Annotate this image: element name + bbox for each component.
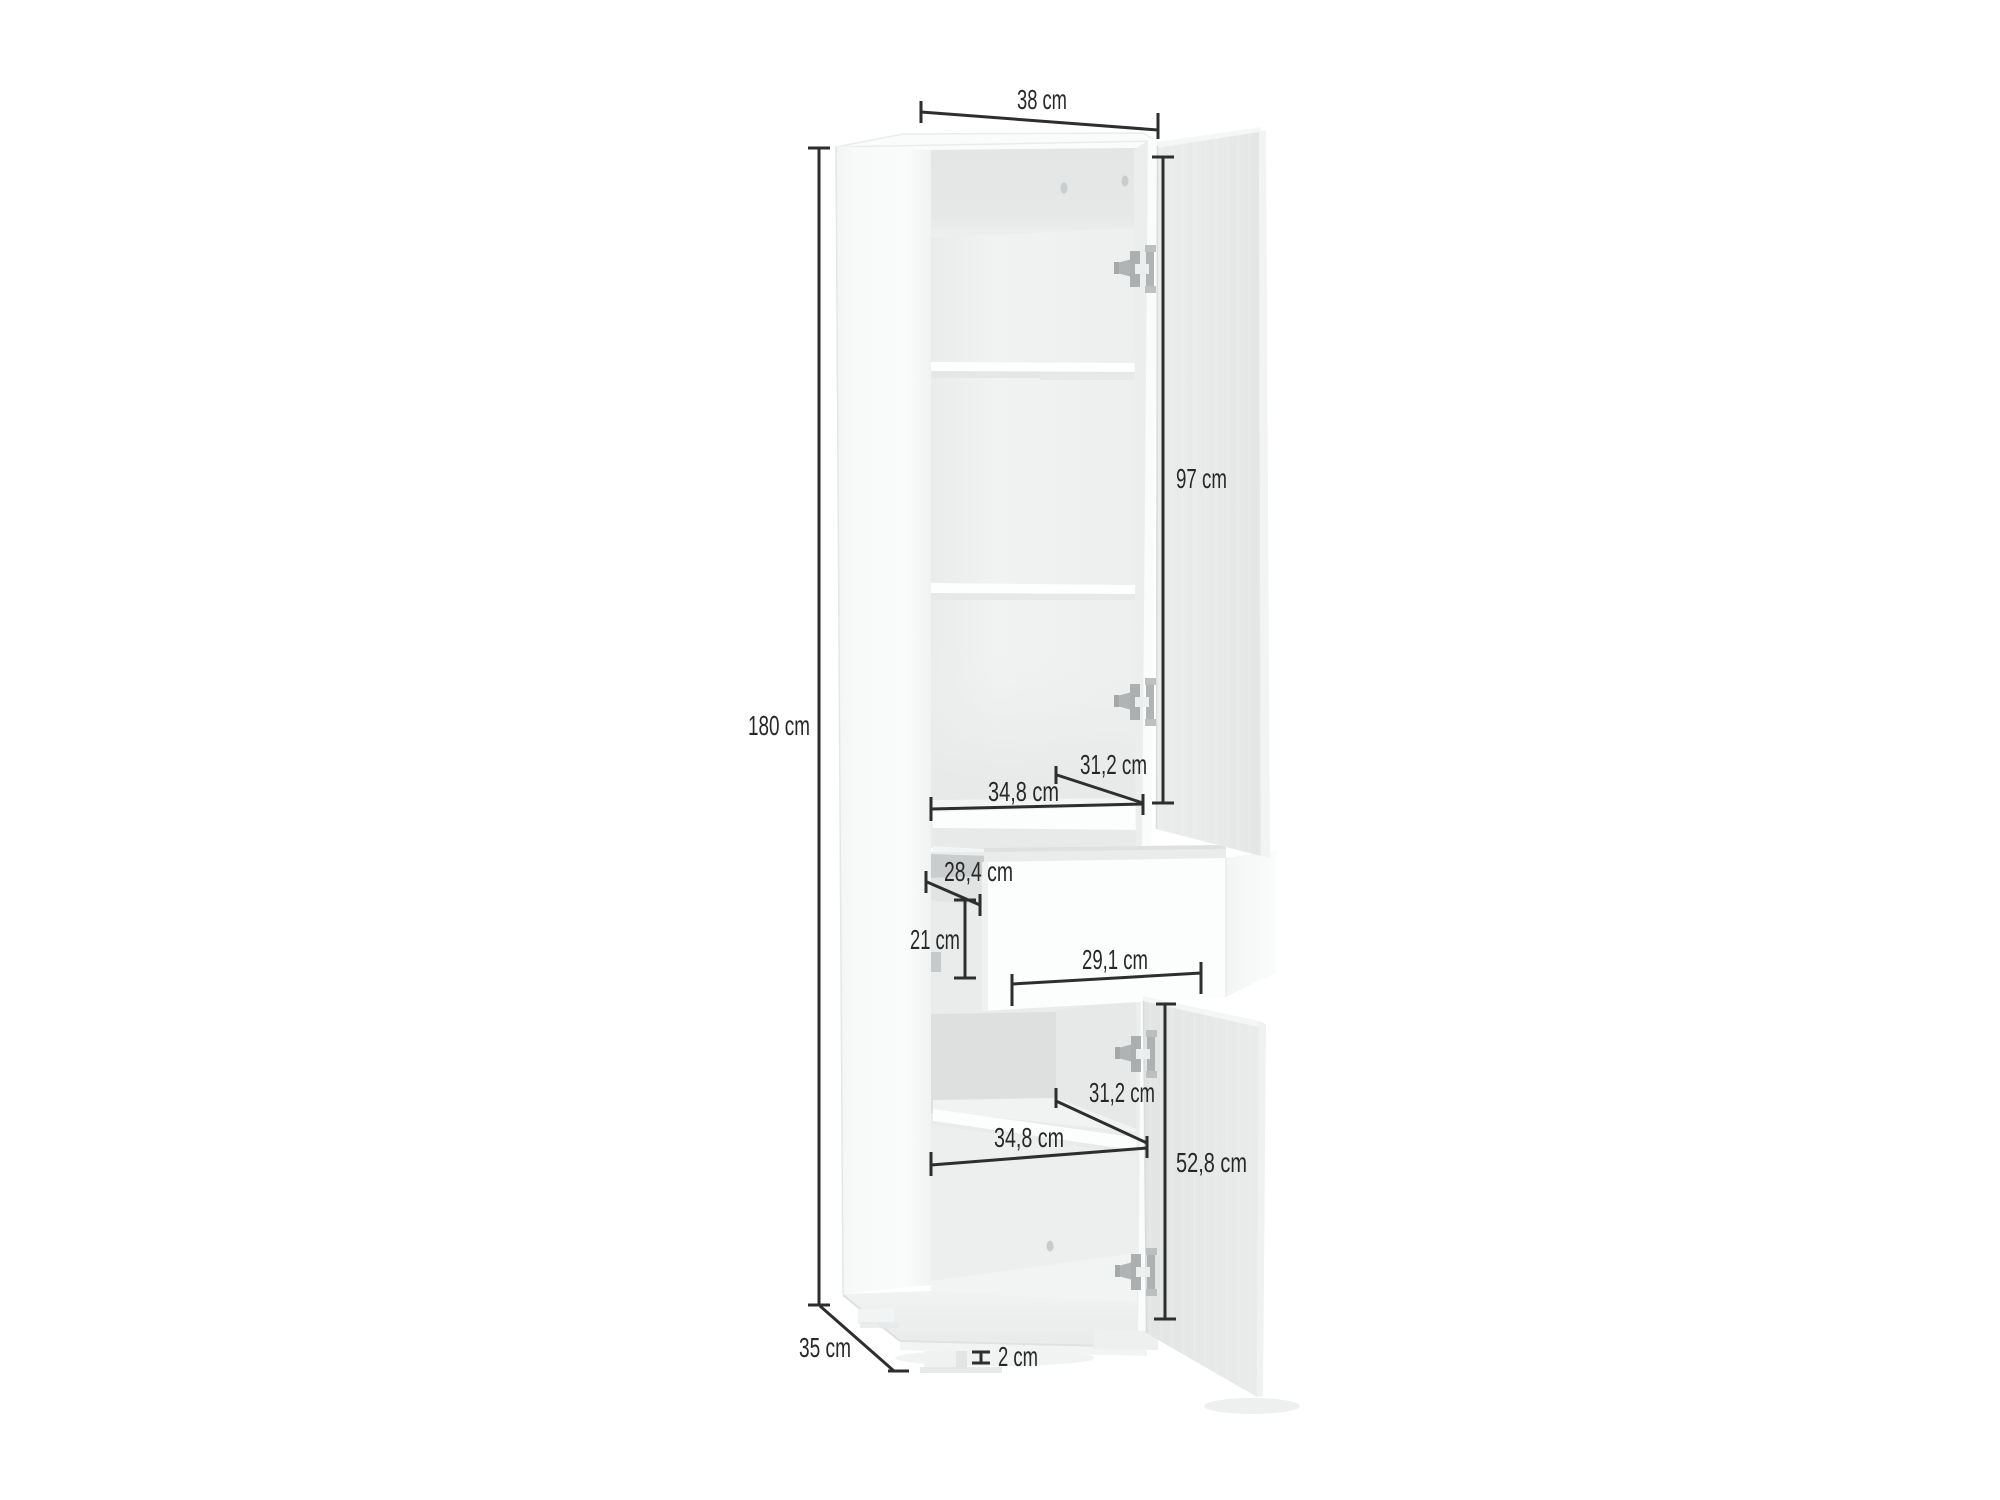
svg-text:2 cm: 2 cm — [998, 1342, 1038, 1373]
svg-text:34,8 cm: 34,8 cm — [988, 777, 1059, 808]
svg-text:31,2 cm: 31,2 cm — [1080, 749, 1147, 781]
svg-text:38 cm: 38 cm — [1017, 85, 1067, 116]
svg-text:21 cm: 21 cm — [910, 925, 960, 956]
svg-text:52,8 cm: 52,8 cm — [1176, 1148, 1247, 1179]
svg-text:97 cm: 97 cm — [1176, 463, 1227, 495]
svg-text:180 cm: 180 cm — [748, 710, 810, 742]
svg-text:29,1 cm: 29,1 cm — [1082, 944, 1148, 976]
svg-text:35 cm: 35 cm — [799, 1332, 851, 1364]
svg-text:28,4 cm: 28,4 cm — [944, 857, 1013, 888]
svg-text:31,2 cm: 31,2 cm — [1089, 1077, 1155, 1109]
svg-text:34,8 cm: 34,8 cm — [994, 1123, 1064, 1154]
